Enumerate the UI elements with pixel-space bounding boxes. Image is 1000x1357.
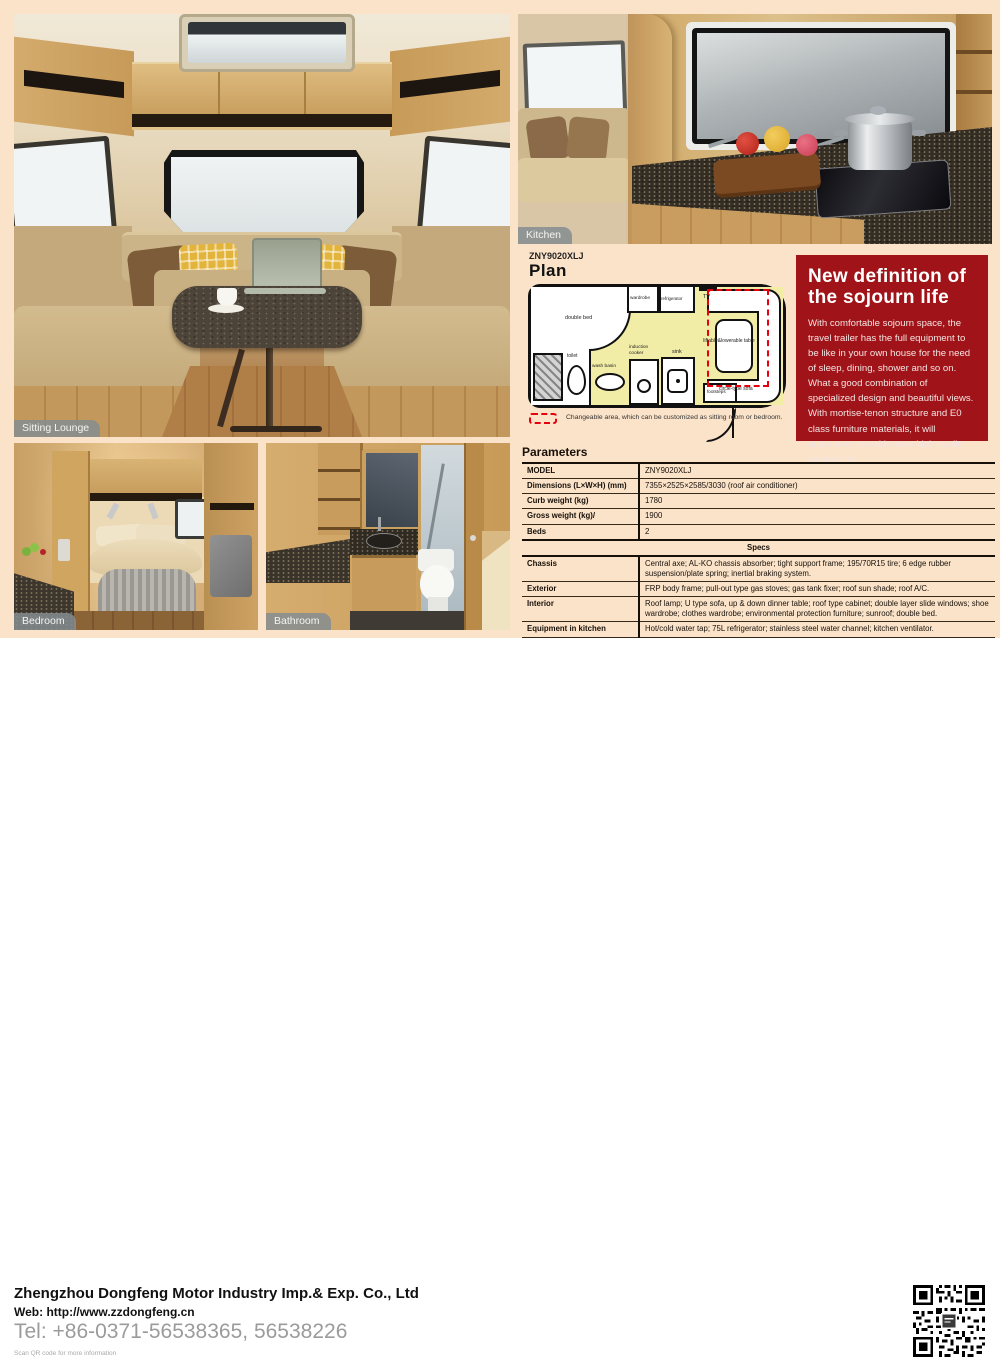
plan-label-tv: TV: [703, 294, 710, 300]
spec-value-kitchen: Hot/cold water tap; 75L refrigerator; st…: [639, 622, 995, 637]
table-row: Dimensions (L×W×H) (mm) 7355×2525×2585/3…: [522, 479, 995, 494]
table-foot: [230, 426, 322, 432]
spec-label-kitchen: Equipment in kitchen: [522, 622, 639, 637]
drinking-glass: [58, 539, 70, 561]
door-handle: [470, 535, 476, 541]
spec-value-chassis: Central axe; AL-KO chassis absorber; tig…: [639, 556, 995, 582]
plan-label-sofa: circle-type sofa: [719, 387, 753, 393]
specs-header: Specs: [522, 540, 995, 556]
footer: Zhengzhou Dongfeng Motor Industry Imp.& …: [0, 638, 1000, 737]
param-label-model: MODEL: [522, 463, 639, 479]
table-row: Gross weight (kg)/ 1900: [522, 509, 995, 524]
cooking-pot: [848, 120, 912, 170]
tomato: [736, 132, 759, 155]
website-url: Web: http://www.zzdongfeng.cn: [14, 1305, 195, 1319]
plan-entry-door-leaf: [732, 408, 734, 438]
bedroom-window: [175, 499, 207, 539]
pot-handle-right: [912, 130, 926, 136]
bathroom-cabinet-shelves: [318, 443, 360, 535]
bathroom-floor: [350, 611, 464, 630]
param-label-curb-weight: Curb weight (kg): [522, 494, 639, 509]
spec-value-exterior: FRP body frame; pull-out type gas stoves…: [639, 582, 995, 597]
param-value-dimensions: 7355×2525×2585/3030 (roof air conditione…: [639, 479, 995, 494]
plan-label-toilet: toilet: [567, 354, 578, 360]
spec-label-interior: Interior: [522, 597, 639, 622]
table-row: Equipment in kitchen Hot/cold water tap;…: [522, 622, 995, 637]
toilet-bowl: [420, 565, 454, 601]
photo-sitting-lounge: Sitting Lounge: [14, 14, 510, 437]
photo-label-sitting-lounge: Sitting Lounge: [14, 420, 100, 437]
bedroom-floor: [74, 611, 204, 630]
dragon-fruit: [796, 134, 818, 156]
dining-table: [172, 286, 362, 348]
bedroom-shelf-strip: [210, 503, 254, 510]
qr-code: [913, 1285, 985, 1357]
apple-green-2: [30, 543, 39, 552]
photo-label-kitchen: Kitchen: [518, 227, 572, 244]
photo-kitchen: Kitchen: [518, 14, 992, 244]
kitchen-pillow-2: [566, 116, 610, 162]
changeable-area-legend-text: Changeable area, which can be customized…: [566, 414, 796, 421]
floor-plan: double bed wardrobe refrigerator TV toil…: [528, 284, 786, 408]
parameters-heading: Parameters: [522, 445, 587, 459]
plan-label-induction-cooker: induction cooker: [629, 345, 655, 356]
rear-window: [164, 150, 364, 240]
plan-sink-drain: [676, 379, 680, 383]
promo-title-line1: New definition of: [808, 266, 976, 287]
param-value-curb-weight: 1780: [639, 494, 995, 509]
spec-value-interior: Roof lamp; U type sofa, up & down dinner…: [639, 597, 995, 622]
plan-label-refrigerator: refrigerator: [661, 296, 682, 301]
photo-bedroom: Bedroom: [14, 443, 258, 630]
table-row: Exterior FRP body frame; pull-out type g…: [522, 582, 995, 597]
plan-label-wardrobe: wardrobe: [630, 296, 650, 302]
photo-label-bathroom: Bathroom: [266, 613, 331, 630]
spec-label-chassis: Chassis: [522, 556, 639, 582]
plan-label-double-bed: double bed: [565, 315, 592, 321]
refrigerator-unit: [210, 535, 252, 597]
bedroom-overhead-cabinet: [74, 459, 202, 495]
plan-shower: [533, 353, 563, 401]
pot-handle-left: [834, 130, 848, 136]
promo-title-line2: the sojourn life: [808, 287, 976, 308]
photo-label-bedroom: Bedroom: [14, 613, 76, 630]
telephone-numbers: Tel: +86-0371-56538365, 56538226: [14, 1320, 347, 1344]
photo-bathroom: Bathroom: [266, 443, 510, 630]
plan-label-wash-basin: wash basin: [592, 364, 616, 370]
param-label-beds: Beds: [522, 524, 639, 540]
laptop-base: [244, 288, 326, 294]
plan-label-sink: sink: [672, 349, 682, 355]
faucet: [378, 517, 381, 531]
kitchen-pillow-1: [525, 115, 570, 162]
cabinet-dark-strip: [132, 114, 392, 130]
table-row: Curb weight (kg) 1780: [522, 494, 995, 509]
table-pole: [266, 346, 273, 430]
qr-note: Scan QR code for more information: [14, 1350, 116, 1357]
param-value-model: ZNY9020XLJ: [639, 463, 995, 479]
seat-base-right: [338, 386, 510, 437]
yellow-pepper: [764, 126, 790, 152]
brochure-page: Sitting Lounge Kitchen: [0, 0, 1000, 737]
table-row: Chassis Central axe; AL-KO chassis absor…: [522, 556, 995, 582]
spec-label-exterior: Exterior: [522, 582, 639, 597]
skylight: [179, 14, 355, 72]
coffee-cup: [217, 288, 237, 306]
plan-model-code: ZNY9020XLJ: [529, 251, 584, 261]
laptop-screen: [252, 238, 322, 292]
rear-window-glass: [171, 157, 357, 233]
plan-cooker-ring: [637, 379, 651, 393]
pot-lid-knob: [870, 106, 886, 115]
skylight-glass: [188, 22, 346, 63]
promo-title: New definition of the sojourn life: [808, 266, 976, 309]
plan-title: Plan: [529, 261, 567, 281]
promo-box: New definition of the sojourn life With …: [796, 255, 988, 441]
company-name: Zhengzhou Dongfeng Motor Industry Imp.& …: [14, 1285, 419, 1302]
changeable-area-legend-swatch: [529, 413, 557, 424]
wash-basin: [366, 533, 402, 549]
plan-label-table: liftable&lowerable table: [677, 339, 781, 345]
param-value-beds: 2: [639, 524, 995, 540]
toilet-base: [428, 597, 448, 611]
specs-header-row: Specs: [522, 540, 995, 556]
promo-body: With comfortable sojourn space, the trav…: [808, 316, 976, 468]
plan-toilet: [567, 365, 586, 395]
cherry: [40, 549, 46, 555]
bathroom-mirror: [362, 449, 424, 531]
table-row: Beds 2: [522, 524, 995, 540]
param-value-gross-weight: 1900: [639, 509, 995, 524]
table-row: MODEL ZNY9020XLJ: [522, 463, 995, 479]
param-label-dimensions: Dimensions (L×W×H) (mm): [522, 479, 639, 494]
kitchen-sofa-seat: [518, 158, 630, 202]
table-row: Interior Roof lamp; U type sofa, up & do…: [522, 597, 995, 622]
param-label-gross-weight: Gross weight (kg)/: [522, 509, 639, 524]
plan-wash-basin: [595, 373, 625, 391]
